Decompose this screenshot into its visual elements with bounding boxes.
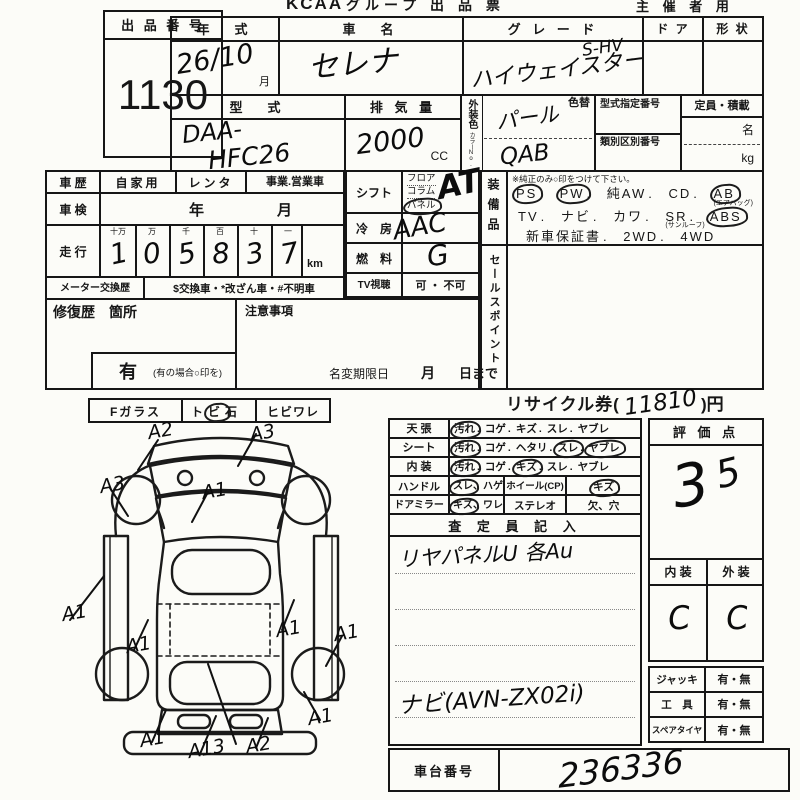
damage-mark-right-outer: A1 [333, 622, 361, 645]
separator: . [580, 442, 583, 454]
shift-label-cell: シフト [345, 170, 403, 214]
stereo-label-cell: ステレオ [503, 494, 567, 515]
model-code-cell: 型 式 DAA- HFC26 [170, 94, 346, 172]
headliner-tear: ヤブレ [578, 423, 610, 435]
seat-burn: コゲ [485, 442, 506, 454]
dotted-rule [395, 681, 635, 682]
tv-options: 可 ・ 不可 [403, 281, 478, 292]
damage-mark-rear-right: A2 [245, 734, 273, 757]
mileage-label: 走 行 [47, 246, 99, 258]
year-cell: 年 式 26/10 月 [170, 16, 280, 96]
digit-col: 千 5 [169, 226, 205, 276]
car-name-label: 車 名 [280, 18, 462, 42]
history-business-cell: 事業.営業車 [245, 170, 345, 194]
equip-sr-sub: (サンルーフ) [665, 222, 704, 229]
digit-header: 万 [135, 228, 169, 236]
digit-value: 7 [278, 239, 301, 270]
exterior-color-cell: 外装色 カラーNo. 色替 パール QAB [460, 94, 596, 172]
year-unit: 月 [259, 77, 270, 88]
spare-tire-options: 有・無 [706, 726, 762, 737]
stonechip-post: 石 [225, 405, 242, 419]
equip-pw: PW [560, 187, 585, 200]
sales-point-label: セールスポイント [488, 254, 499, 366]
seat-wear: スレ [557, 443, 578, 454]
handle-options-cell: スレ、ハゲ [448, 475, 505, 496]
dotted-rule [395, 645, 635, 646]
exterior-color-label-strip: 外装色 カラーNo. [462, 96, 483, 170]
fuel-label-cell: 燃 料 [345, 242, 403, 274]
history-rental: レンタ [177, 177, 245, 189]
headliner-label-cell: 天 張 [388, 418, 450, 439]
equip-leather: カワ [613, 209, 643, 224]
inspection-year-unit: 年 [189, 203, 204, 218]
headliner-label: 天 張 [390, 424, 448, 435]
meter-history-label-cell: メーター交換歴 [45, 276, 145, 300]
model-code-label: 型 式 [172, 96, 344, 120]
wheel-option-cell: キズ [565, 475, 642, 496]
inspection-label-cell: 車 検 [45, 192, 101, 226]
seat-options-cell: 汚れ.コゲ.ヘタリ.スレ.ヤブレ [448, 437, 642, 458]
handle-wear: スレ [453, 482, 473, 492]
history-rental-cell: レンタ [175, 170, 247, 194]
jack-label: ジャッキ [650, 675, 704, 686]
separator: . [648, 186, 654, 201]
year-label: 年 式 [172, 18, 278, 42]
equip-warranty: 新車保証書 [526, 229, 601, 244]
recycle-fee-line: リサイクル券(11810)円 [506, 392, 724, 415]
capacity-persons-unit: 名 [742, 124, 754, 136]
interior-options-cell: 汚れ.コゲ.キズ.スレ.ヤブレ [448, 456, 642, 477]
mileage-label-cell: 走 行 [45, 224, 101, 278]
history-private: 自家用 [101, 177, 175, 189]
displacement-label: 排 気 量 [346, 96, 460, 120]
jack-label-cell: ジャッキ [648, 666, 706, 693]
headliner-wear: スレ [547, 423, 568, 435]
type-class-divider [596, 133, 680, 135]
door-label: ド ア [644, 18, 702, 42]
headliner-burn: コゲ [485, 423, 506, 435]
meter-history-label: メーター交換歴 [47, 284, 143, 294]
tools-options: 有・無 [706, 700, 762, 711]
digit-header: 千 [169, 228, 203, 236]
sales-point-label-strip: セールスポイント [482, 246, 508, 388]
meter-history-options: $交換車・*改ざん車・#不明車 [145, 284, 343, 295]
front-glass-stonechip-cell: トビ石 [181, 398, 257, 423]
mirror-options-cell: キズ、ワレ [448, 494, 505, 515]
interior-scratch: キズ [516, 462, 537, 473]
brand-logo: KCAA [286, 0, 343, 12]
separator: . [477, 442, 480, 454]
handle-bald: ハゲ [483, 481, 503, 492]
equipment-note: ※純正のみ○印をつけて下さい。 [512, 175, 635, 184]
grade-value: ハイウェイスター [469, 49, 645, 92]
chassis-label: 車台番号 [390, 765, 498, 778]
front-glass-crack-cell: ヒビワレ [255, 398, 331, 423]
recycle-fee-prefix: リサイクル券( [506, 395, 620, 414]
digit-header: 十 [237, 228, 271, 236]
shift-option-column: コラム [407, 187, 435, 199]
car-name-value: セレナ [307, 46, 399, 84]
history-business: 事業.営業車 [247, 177, 343, 188]
equip-tv: TV [518, 209, 539, 224]
shift-label: シフト [347, 187, 401, 199]
assessor-header-cell: 査 定 員 記 入 [388, 513, 642, 537]
equipment-label-strip: 装備品 [482, 172, 508, 244]
capacity-kg-unit: kg [741, 152, 754, 164]
model-code-line2: HFC26 [207, 140, 292, 173]
exterior-grade-label: 外 装 [708, 566, 764, 578]
recycle-fee-value: 11810 [623, 387, 699, 420]
capacity-label: 定員・積載 [682, 96, 762, 118]
damage-mark-front-left: A2 [147, 420, 175, 443]
exterior-color-label: 外装色 [466, 99, 476, 129]
tools-options-cell: 有・無 [704, 691, 764, 718]
equip-navi: ナビ [561, 209, 591, 224]
headliner-dirt: 汚れ [454, 424, 475, 435]
front-glass-stonechip: トビ石 [191, 406, 242, 418]
separator: . [570, 461, 573, 473]
damage-mark-right-rear: A1 [307, 706, 335, 729]
type-designation-label: 型式指定番号 [600, 100, 660, 110]
digit-col: 十万 1 [101, 226, 137, 276]
door-cell: ド ア [642, 16, 704, 96]
shift-option-floor: フロア [407, 174, 436, 186]
damage-mark-right-inner: A1 [275, 618, 303, 641]
score-box: 評 価 点 3 5 [648, 418, 764, 560]
separator: . [508, 442, 511, 454]
mirror-label: ドアミラー [390, 501, 448, 511]
wheel-label-cell: ホイール(CP) [503, 475, 567, 496]
separator: . [508, 461, 511, 473]
damage-mark-left-mirror: A3 [99, 474, 127, 497]
mileage-digit-grid: 十万 1 万 0 千 5 百 8 十 3 一 7 [99, 224, 303, 278]
class-number-label: 類別区別番号 [600, 138, 660, 148]
capacity-cell: 定員・積載 名 kg [680, 94, 764, 172]
digit-header: 百 [203, 228, 237, 236]
page-title: グループ 出 品 票 [346, 0, 505, 12]
seat-label-cell: シート [388, 437, 450, 458]
tv-options-cell: 可 ・ 不可 [401, 272, 480, 298]
separator: 、 [473, 481, 483, 492]
equip-4wd: 4WD [680, 229, 715, 244]
tools-label: 工 具 [650, 700, 704, 711]
displacement-value: 2000 [355, 124, 426, 159]
grade-int-ext-box: 内 装 外 装 C C [648, 558, 764, 662]
mileage-unit: km [307, 259, 323, 270]
interior-grade-label: 内 装 [650, 566, 706, 578]
separator: . [603, 229, 609, 244]
mirror-label-cell: ドアミラー [388, 494, 450, 515]
interior-tear: ヤブレ [578, 461, 610, 473]
auction-sheet: KCAA グループ 出 品 票 主 催 者 用 出 品 番 号 1130 年 式… [0, 0, 800, 800]
equip-ab: AB(エアバッグ) [714, 187, 735, 200]
fuel-value: G [425, 241, 450, 272]
stereo-label: ステレオ [505, 501, 565, 512]
assessor-writing-box: リヤパネルU 各Au ナビ(AVN-ZX02i) [388, 535, 642, 746]
damage-mark-hood: A1 [201, 480, 229, 503]
chassis-value: 236336 [558, 744, 684, 793]
digit-header: 一 [271, 228, 305, 236]
dotted-rule [395, 609, 635, 610]
separator: . [539, 186, 545, 201]
digit-col: 一 7 [271, 226, 305, 276]
separator: . [660, 229, 666, 244]
stereo-missing: 欠、穴 [567, 501, 640, 512]
name-change-label: 名変期限日 [329, 368, 389, 380]
equip-aw: 純AW [607, 186, 646, 201]
damage-mark-left-outer: A1 [61, 602, 89, 625]
stonechip-circled: ビ [208, 406, 225, 418]
wheel-scratch: キズ [593, 482, 614, 493]
seat-label: シート [390, 443, 448, 454]
score-digit-sub: 5 [712, 452, 745, 495]
separator: . [587, 186, 593, 201]
front-glass-label: Fガラス [90, 406, 181, 418]
separator: . [693, 186, 699, 201]
type-designation-cell: 型式指定番号 類別区別番号 [594, 94, 682, 172]
spare-tire-label: スペアタイヤ [650, 726, 704, 735]
tv-label: TV視聴 [347, 281, 401, 291]
chassis-label-cell: 車台番号 [388, 748, 500, 792]
digit-col: 十 3 [237, 226, 273, 276]
grade-cell: グ レ ー ド ハイウェイスター S-HV [462, 16, 644, 96]
exterior-grade-value: C [724, 601, 750, 635]
color-change-label: 色替 [568, 98, 590, 109]
digit-value: 3 [244, 239, 266, 269]
displacement-cell: 排 気 量 2000 CC [344, 94, 462, 172]
score-label: 評 価 点 [650, 420, 762, 446]
chassis-value-cell: 236336 [498, 748, 790, 792]
separator: . [541, 209, 547, 224]
jack-options: 有・無 [706, 675, 762, 686]
name-change-month: 月 [421, 366, 435, 380]
assessor-note: リヤパネルU 各Au [398, 540, 574, 570]
repair-has-subcell: 有 (有の場合○印を) [91, 352, 237, 390]
interior-wear: スレ [547, 461, 568, 473]
color-code-value: QAB [499, 141, 551, 169]
interior-burn: コゲ [485, 461, 506, 473]
handle-label: ハンドル [390, 482, 448, 493]
page-title-right: 主 催 者 用 [636, 0, 734, 13]
equipment-line2: TV. ナビ. カワ. SR(サンルーフ). ABS [518, 210, 742, 223]
digit-header: 十万 [101, 228, 135, 236]
equip-abs: ABS [710, 210, 742, 223]
stonechip-pre: ト [191, 405, 208, 419]
front-glass-crack: ヒビワレ [257, 406, 329, 418]
equip-ab-sub: (エアバッグ) [714, 200, 753, 207]
color-divider [484, 138, 592, 139]
separator: . [539, 461, 542, 473]
shift-value: AT [434, 164, 483, 204]
jack-options-cell: 有・無 [704, 666, 764, 693]
equipment-box: 装備品 ※純正のみ○印をつけて下さい。 PS. PW. 純AW. CD. AB(… [480, 170, 764, 246]
separator: . [549, 442, 552, 454]
assessor-header: 査 定 員 記 入 [390, 520, 640, 533]
digit-value: 5 [176, 239, 198, 270]
separator: . [477, 461, 480, 473]
headliner-options-cell: 汚れ.コゲ.キズ.スレ.ヤブレ [448, 418, 642, 439]
history-label-cell: 車 歴 [45, 170, 101, 194]
wheel-label: ホイール(CP) [505, 482, 565, 492]
inspection-label: 車 検 [47, 204, 99, 216]
history-private-cell: 自家用 [99, 170, 177, 194]
caution-box: 注意事項 名変期限日 月 日まで [235, 298, 480, 390]
separator: . [508, 423, 511, 435]
handle-label-cell: ハンドル [388, 475, 450, 496]
damage-mark-front-right: A3 [249, 422, 277, 445]
history-label: 車 歴 [47, 177, 99, 189]
equip-sr: SR(サンルーフ) [665, 209, 687, 224]
interior-label-cell: 内 装 [388, 456, 450, 477]
repair-history-label: 修復歴 箇所 [53, 305, 137, 319]
equipment-line1: PS. PW. 純AW. CD. AB(エアバッグ) [516, 187, 735, 200]
color-value: パール [495, 104, 560, 134]
spare-tire-options-cell: 有・無 [704, 716, 764, 743]
inspection-value-cell: 年 月 [99, 192, 345, 226]
year-value: 26/10 [174, 40, 255, 79]
displacement-unit: CC [431, 150, 448, 162]
mirror-scratch: キズ [453, 501, 473, 511]
repair-has-note: (有の場合○印を) [153, 369, 222, 379]
seat-dirt: 汚れ [454, 443, 475, 454]
car-name-cell: 車 名 セレナ [278, 16, 464, 96]
recycle-fee-suffix: )円 [701, 395, 724, 414]
equipment-line3: 新車保証書. 2WD. 4WD [526, 230, 715, 243]
seat-sag: ヘタリ [516, 442, 548, 454]
assessor-navi-note: ナビ(AVN-ZX02i) [397, 683, 585, 719]
damage-mark-left-inner: A1 [125, 634, 153, 657]
repair-has-label: 有 [119, 363, 137, 381]
inspection-month-unit: 月 [277, 203, 292, 218]
digit-value: 0 [141, 239, 163, 269]
digit-col: 百 8 [203, 226, 239, 276]
separator: . [570, 423, 573, 435]
equipment-label: 装備品 [487, 178, 499, 238]
damage-mark-rear-left: A1 [139, 728, 167, 751]
shape-label: 形 状 [704, 18, 762, 42]
repair-history-box: 修復歴 箇所 有 (有の場合○印を) [45, 298, 237, 390]
interior-dirt: 汚れ [454, 462, 475, 473]
digit-value: 1 [107, 238, 130, 269]
separator: . [593, 209, 599, 224]
fuel-value-cell: G [401, 242, 480, 274]
separator: . [477, 423, 480, 435]
stereo-option-cell: 欠、穴 [565, 494, 642, 515]
equip-2wd: 2WD [623, 229, 658, 244]
separator: . [645, 209, 651, 224]
spare-tire-label-cell: スペアタイヤ [648, 716, 706, 743]
digit-value: 8 [211, 239, 232, 269]
headliner-scratch: キズ [516, 423, 537, 435]
interior-label: 内 装 [390, 462, 448, 473]
meter-history-options-cell: $交換車・*改ざん車・#不明車 [143, 276, 345, 300]
score-digit-main: 3 [667, 453, 713, 517]
tv-label-cell: TV視聴 [345, 272, 403, 298]
sales-point-box: セールスポイント [480, 244, 764, 390]
equip-ab-text: AB [714, 186, 735, 201]
seat-tear: ヤブレ [588, 443, 620, 454]
separator: . [539, 423, 542, 435]
equip-cd: CD [669, 186, 692, 201]
interior-grade-value: C [666, 601, 692, 635]
tools-label-cell: 工 具 [648, 691, 706, 718]
capacity-divider [684, 144, 760, 145]
digit-col: 万 0 [135, 226, 171, 276]
mirror-crack: ワレ [483, 500, 503, 511]
fuel-label: 燃 料 [347, 253, 401, 265]
grade-divider [706, 560, 708, 660]
separator: 、 [473, 500, 483, 511]
shape-cell: 形 状 [702, 16, 764, 96]
equip-ps: PS [516, 187, 537, 200]
caution-label: 注意事項 [245, 305, 293, 317]
dotted-rule [395, 573, 635, 574]
mileage-unit-cell: km [301, 224, 345, 278]
